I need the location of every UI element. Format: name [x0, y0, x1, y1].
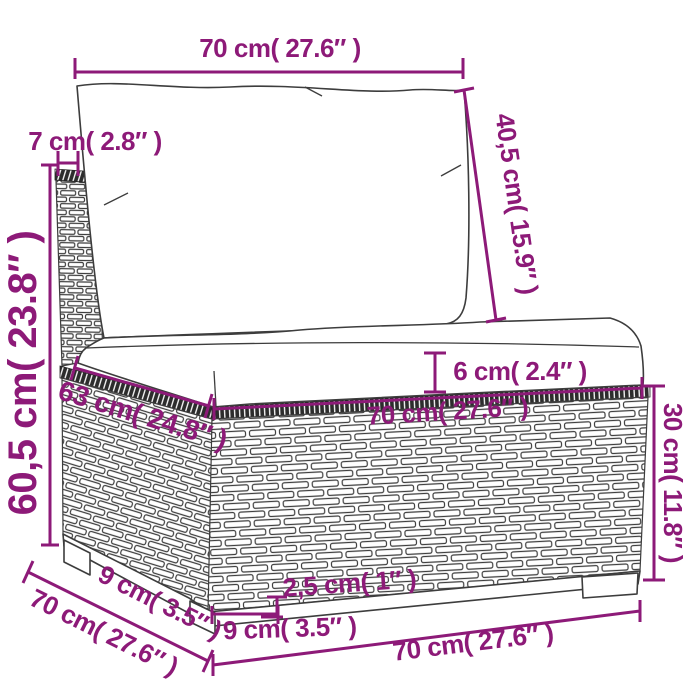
leg-front-right: [582, 573, 638, 598]
dim-top-width: 70 cm( 27.6″ ): [75, 33, 463, 79]
back-cushion: [77, 84, 469, 338]
dim-bottom-width-label: 70 cm( 27.6″ ): [391, 617, 555, 666]
dim-total-height-label: 60,5 cm( 23.8″ ): [1, 231, 45, 516]
dim-leg-width-label: 9 cm( 3.5″ ): [222, 611, 357, 646]
dim-seat-cushion-thickness-label: 6 cm( 2.4″ ): [453, 356, 587, 386]
dim-top-width-label: 70 cm( 27.6″ ): [199, 33, 361, 63]
dim-total-height: 60,5 cm( 23.8″ ): [1, 165, 59, 545]
dim-base-height: 30 cm( 11.8″ ): [643, 386, 688, 580]
dim-base-height-label: 30 cm( 11.8″ ): [658, 403, 688, 563]
product-dimension-diagram: 70 cm( 27.6″ ) 7 cm( 2.8″ ) 40,5 cm( 15.…: [0, 0, 700, 700]
dim-back-cushion-height-label: 40,5 cm( 15.9″ ): [489, 111, 544, 296]
dim-back-thickness-label: 7 cm( 2.8″ ): [28, 126, 162, 156]
sofa-diagram-canvas: 70 cm( 27.6″ ) 7 cm( 2.8″ ) 40,5 cm( 15.…: [0, 0, 700, 700]
